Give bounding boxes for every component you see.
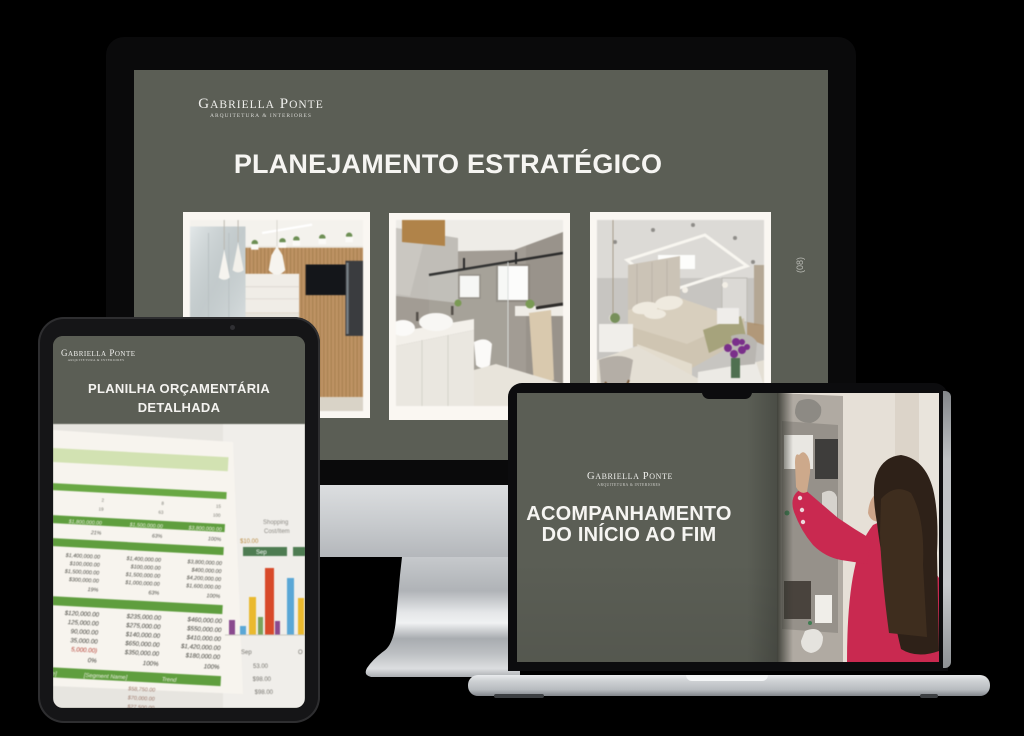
svg-text:O: O <box>298 650 303 656</box>
svg-text:63%: 63% <box>148 590 159 597</box>
svg-text:5,000.00): 5,000.00) <box>71 646 97 654</box>
svg-text:Sep: Sep <box>241 650 252 656</box>
svg-text:100%: 100% <box>203 663 220 671</box>
svg-text:ame]: ame] <box>53 671 57 678</box>
svg-text:15: 15 <box>216 504 222 509</box>
svg-text:100%: 100% <box>208 536 222 543</box>
svg-text:63%: 63% <box>152 533 163 540</box>
svg-text:90,000.00: 90,000.00 <box>70 628 98 636</box>
svg-text:35,000.00: 35,000.00 <box>70 637 98 645</box>
svg-text:100: 100 <box>213 512 221 517</box>
svg-text:$10.00: $10.00 <box>240 539 259 545</box>
svg-text:Trend: Trend <box>162 677 178 684</box>
svg-text:100%: 100% <box>206 593 220 600</box>
svg-text:Cost/Item: Cost/Item <box>264 529 290 535</box>
svg-text:Shopping: Shopping <box>263 520 288 526</box>
svg-text:100%: 100% <box>143 660 160 668</box>
svg-text:21%: 21% <box>90 530 102 537</box>
svg-text:63: 63 <box>158 510 164 515</box>
svg-text:53.00: 53.00 <box>253 664 269 670</box>
svg-text:19: 19 <box>98 507 104 512</box>
svg-text:Sep: Sep <box>256 550 267 556</box>
svg-text:$27,500.00: $27,500.00 <box>126 704 154 708</box>
svg-text:0%: 0% <box>88 657 98 664</box>
svg-text:$98.00: $98.00 <box>255 690 274 696</box>
svg-text:$98.00: $98.00 <box>253 677 272 683</box>
svg-text:19%: 19% <box>87 587 98 594</box>
